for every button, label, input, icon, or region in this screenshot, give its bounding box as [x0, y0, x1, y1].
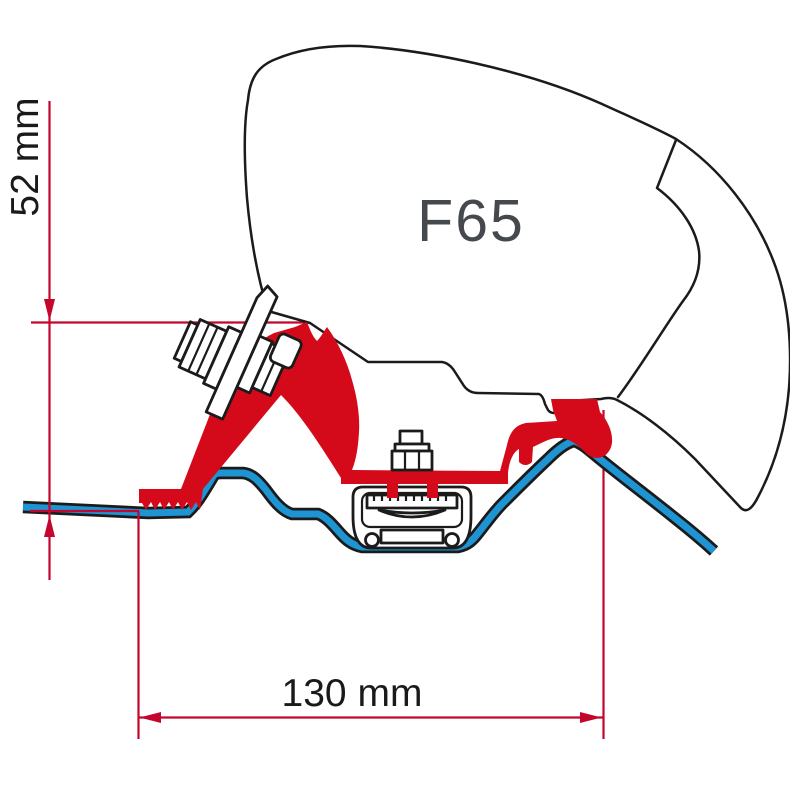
- width-arrow-left-icon: [140, 712, 162, 723]
- bracket-left-post: [387, 478, 398, 498]
- width-dimension-label: 130 mm: [282, 672, 423, 715]
- clamp-bottom-plate: [381, 530, 443, 543]
- center-bolt: [392, 431, 432, 470]
- height-arrow-up-icon: [44, 515, 55, 537]
- width-arrow-right-icon: [580, 712, 602, 723]
- bracket-right-post: [427, 478, 438, 498]
- diagram-canvas: F65: [0, 0, 790, 790]
- model-label: F65: [417, 188, 525, 254]
- clamp-right-hole: [446, 534, 459, 547]
- awning-adapter-diagram: F65: [0, 0, 790, 790]
- clamp-block: [353, 487, 471, 548]
- height-arrow-down-icon: [44, 299, 55, 321]
- clamp-left-hole: [366, 534, 379, 547]
- center-bolt-cap: [400, 431, 422, 444]
- clamp-serrated-jaw: [367, 495, 457, 508]
- height-dimension-label: 52 mm: [4, 97, 47, 216]
- center-bolt-nut: [392, 451, 432, 470]
